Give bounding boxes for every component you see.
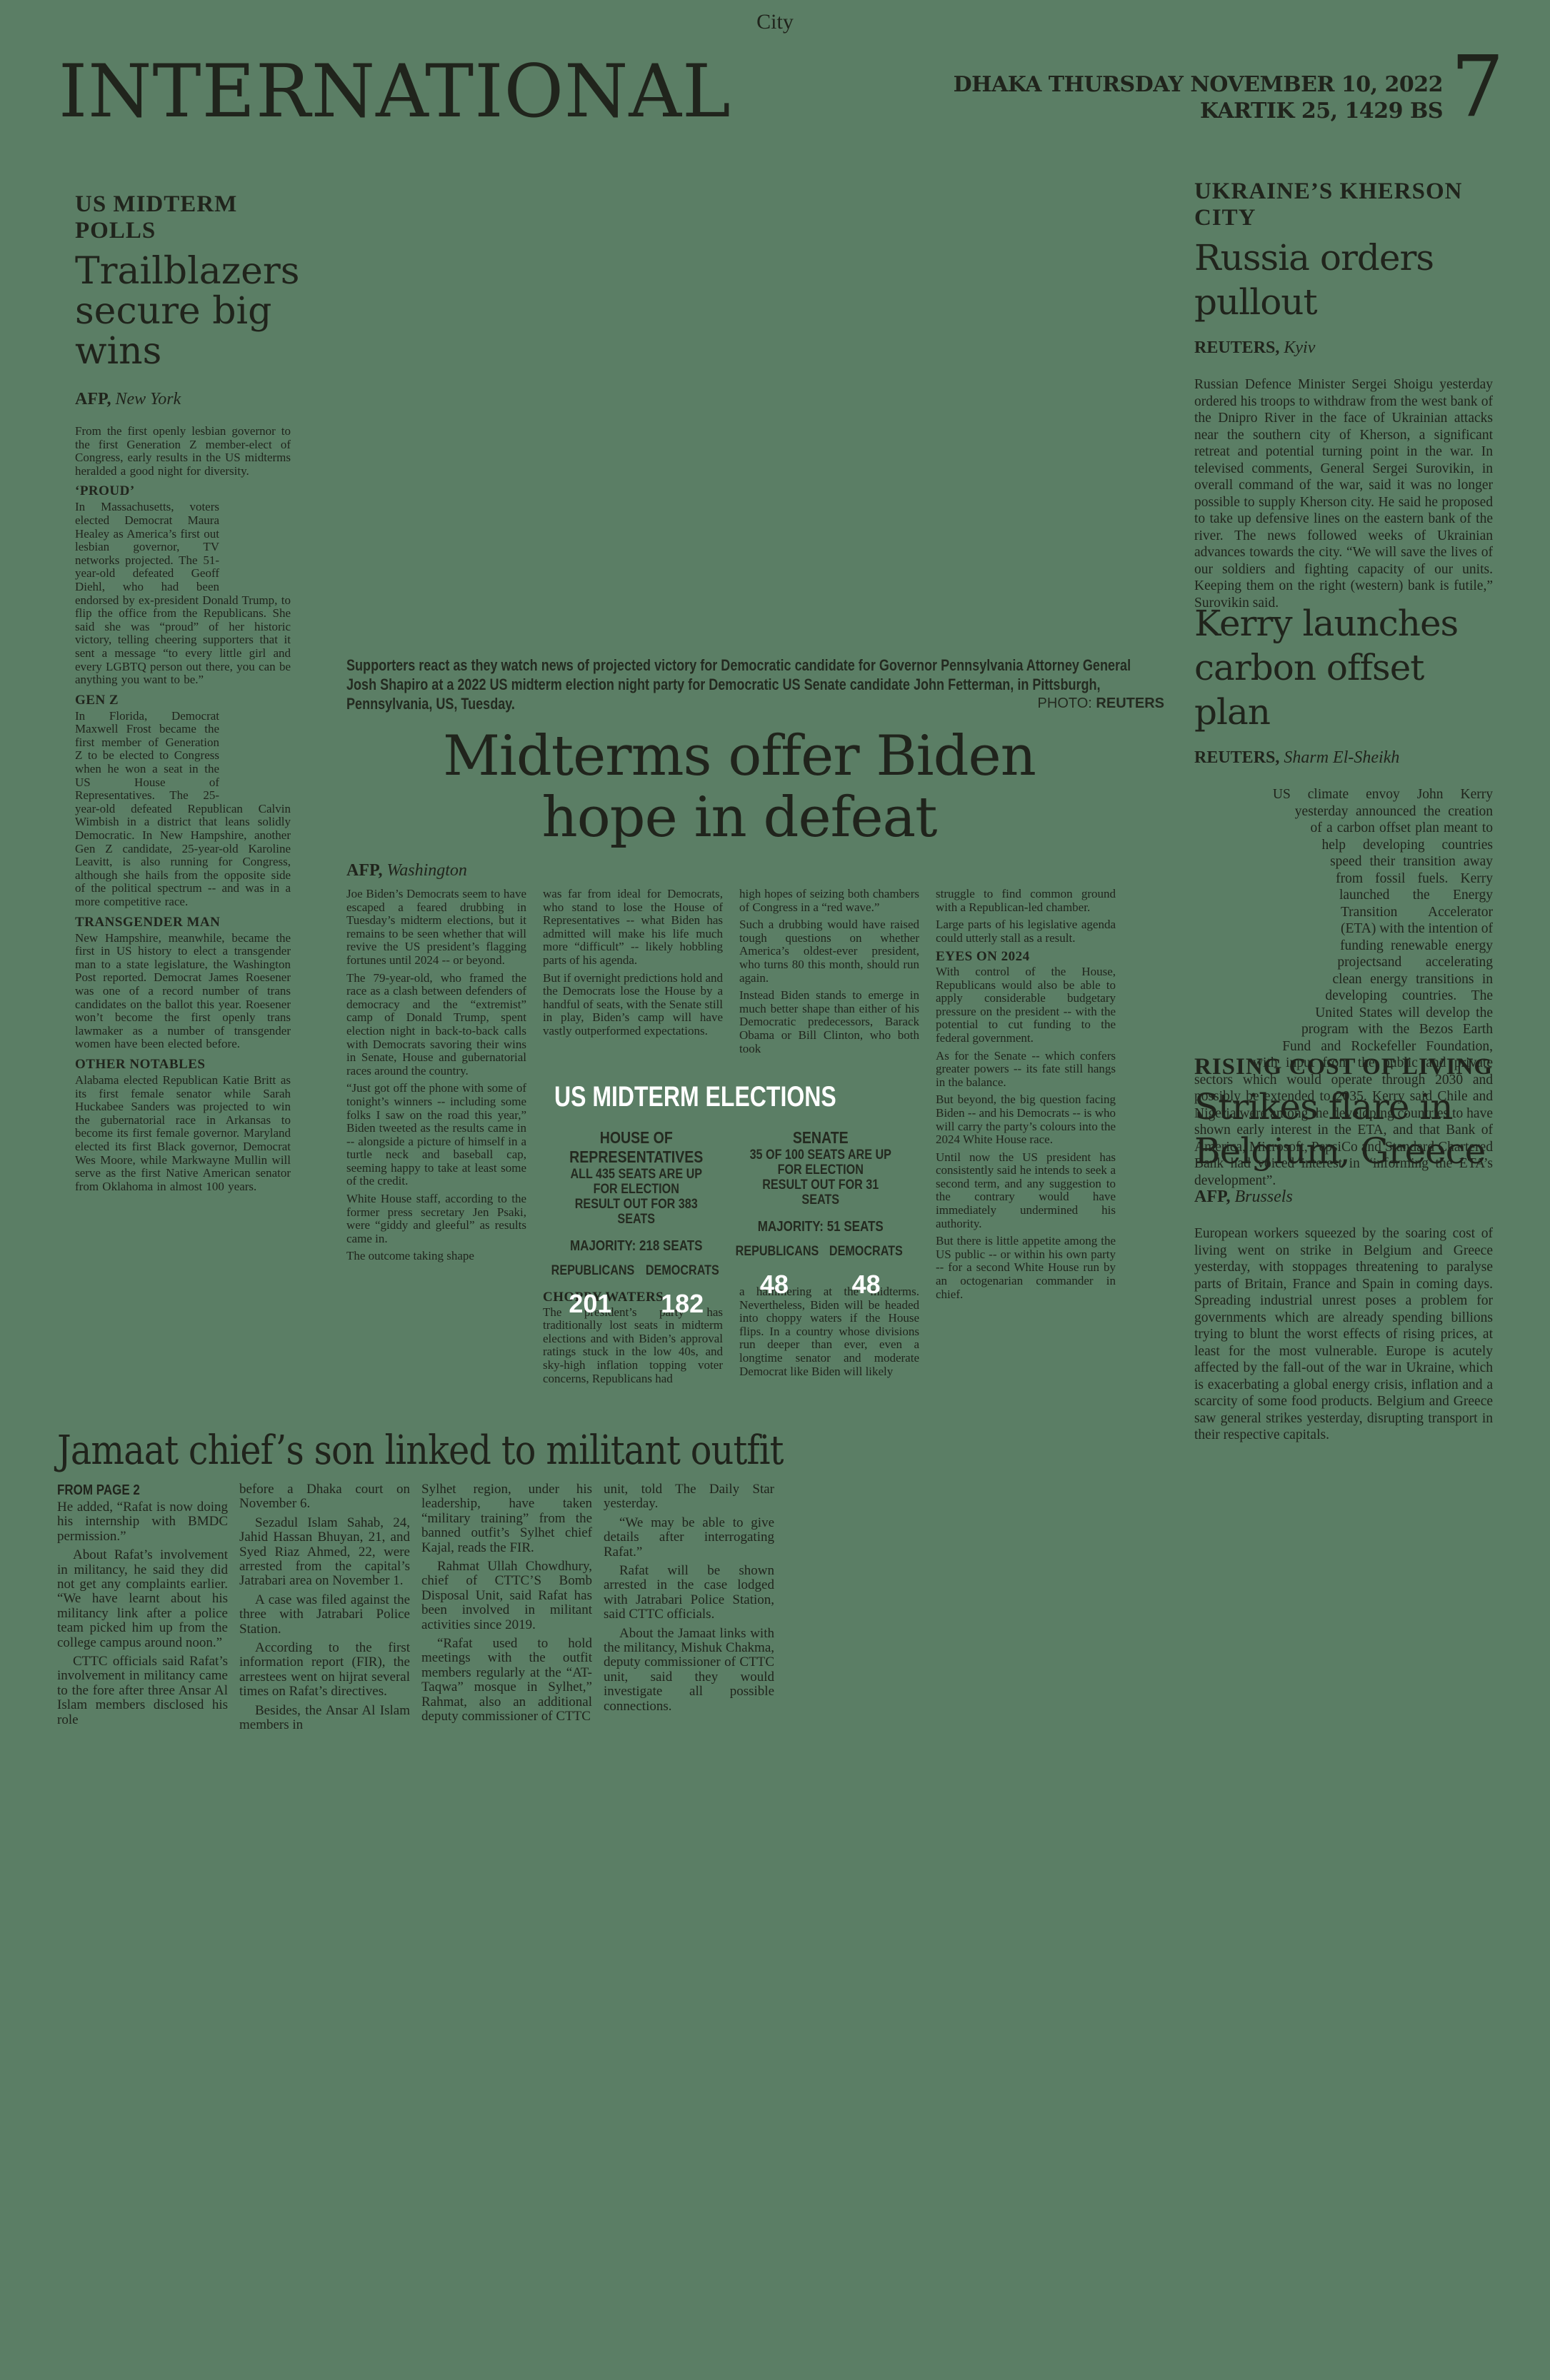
main-column-3-top: high hopes of seizing both chambers of C…: [739, 888, 919, 1070]
house-republicans-count: 201: [544, 1289, 636, 1319]
kicker-us-midterm-polls: US MIDTERM POLLS: [75, 191, 291, 244]
from-page-label: FROM PAGE 2: [57, 1482, 202, 1499]
subhead-other-notables: OTHER NOTABLES: [75, 1057, 291, 1073]
body-paragraph: Russian Defence Minister Sergei Shoigu y…: [1194, 376, 1493, 611]
page-title: INTERNATIONAL: [59, 56, 731, 129]
body-paragraph: high hopes of seizing both chambers of C…: [739, 888, 919, 914]
byline-place: New York: [115, 390, 181, 408]
infographic-senate: SENATE 35 OF 100 SEATS ARE UP FOR ELECTI…: [729, 1128, 913, 1319]
body-paragraph: Until now the US president has consisten…: [936, 1151, 1116, 1231]
photo-cutout-space: [219, 710, 291, 791]
main-column-1: Joe Biden’s Democrats seem to have escap…: [346, 888, 526, 1267]
date-line-2: KARTIK 25, 1429 BS: [954, 98, 1443, 124]
byline: REUTERS, Kyiv: [1194, 338, 1493, 358]
byline-agency: AFP,: [1194, 1188, 1230, 1206]
headline-trailblazers: Trailblazers secure big wins: [75, 251, 291, 371]
body-paragraph: “Rafat used to hold meetings with the ou…: [421, 1637, 592, 1724]
senate-majority: MAJORITY: 51 SEATS: [742, 1219, 899, 1235]
headline-strikes-belgium-greece: Strikes flare in Belgium, Greece: [1194, 1085, 1493, 1173]
body-paragraph: According to the first information repor…: [239, 1641, 410, 1699]
body-paragraph: Alabama elected Republican Katie Britt a…: [75, 1074, 291, 1193]
house-heading: HOUSE OF REPRESENTATIVES: [558, 1128, 714, 1167]
body-paragraph: In Florida, Democrat Maxwell Frost becam…: [75, 710, 291, 909]
byline-place: Sharm El-Sheikh: [1284, 748, 1399, 767]
headline-line: Midterms offer Biden: [346, 725, 1132, 787]
senate-result-line: RESULT OUT FOR 31 SEATS: [742, 1178, 899, 1207]
headline-line: Russia orders: [1194, 236, 1493, 280]
newspaper-page: City INTERNATIONAL DHAKA THURSDAY NOVEMB…: [0, 0, 1550, 2380]
senate-seats-line: 35 OF 100 SEATS ARE UP FOR ELECTION: [742, 1148, 899, 1178]
byline: REUTERS, Sharm El-Sheikh: [1194, 748, 1493, 768]
headline-line: pullout: [1194, 280, 1493, 324]
senate-republicans-label: REPUBLICANS: [735, 1244, 813, 1260]
kicker-rising-cost-of-living: RISING COST OF LIVING: [1194, 1054, 1493, 1080]
senate-democrats-label: DEMOCRATS: [827, 1244, 905, 1260]
house-seats-line: ALL 435 SEATS ARE UP FOR ELECTION: [558, 1167, 714, 1197]
headline-line: Belgium, Greece: [1194, 1129, 1493, 1173]
body-paragraph: “We may be able to give details after in…: [604, 1516, 774, 1560]
byline-agency: AFP,: [75, 390, 111, 408]
body-paragraph: A case was filed against the three with …: [239, 1593, 410, 1637]
body-paragraph: Besides, the Ansar Al Islam members in: [239, 1704, 410, 1733]
body-paragraph: Rahmat Ullah Chowdhury, chief of CTTC’S …: [421, 1560, 592, 1632]
jamaat-column-4: unit, told The Daily Star yesterday. “We…: [604, 1482, 774, 1737]
body-paragraph: The 79-year-old, who framed the race as …: [346, 972, 526, 1078]
subhead-transgender-man: TRANSGENDER MAN: [75, 915, 291, 930]
infographic-title: US MIDTERM ELECTIONS: [554, 1081, 836, 1113]
headline-line: wins: [75, 331, 291, 371]
body-paragraph: Joe Biden’s Democrats seem to have escap…: [346, 888, 526, 968]
body-paragraph: Such a drubbing would have raised tough …: [739, 918, 919, 985]
body-paragraph: About Rafat’s involvement in militancy, …: [57, 1548, 228, 1650]
photo-credit-label: PHOTO:: [1038, 696, 1092, 711]
body-paragraph: The outcome taking shape: [346, 1250, 526, 1263]
body-paragraph: CTTC officials said Rafat’s involvement …: [57, 1655, 228, 1727]
body-paragraph: was far from ideal for Democrats, who st…: [543, 888, 723, 968]
jamaat-column-1: FROM PAGE 2 He added, “Rafat is now doin…: [57, 1482, 228, 1737]
body-paragraph: Instead Biden stands to emerge in much b…: [739, 989, 919, 1055]
body-paragraph: “Just got off the phone with some of ton…: [346, 1082, 526, 1188]
senate-heading: SENATE: [742, 1128, 899, 1148]
kicker-ukraines-kherson-city: UKRAINE’S KHERSON CITY: [1194, 179, 1493, 231]
byline-agency: REUTERS,: [1194, 338, 1279, 357]
headline-line: Kerry launches: [1194, 601, 1493, 646]
body-paragraph: Sylhet region, under his leadership, hav…: [421, 1482, 592, 1555]
photo-placeholder: [346, 200, 1164, 646]
byline-agency: AFP,: [346, 861, 382, 880]
body-paragraph: In Massachusetts, voters elected Democra…: [75, 501, 291, 686]
body-paragraph: Large parts of his legislative agenda co…: [936, 918, 1116, 945]
body-paragraph: Sezadul Islam Sahab, 24, Jahid Hassan Bh…: [239, 1516, 410, 1589]
body-paragraph: struggle to find common ground with a Re…: [936, 888, 1116, 914]
headline-line: hope in defeat: [346, 787, 1132, 848]
byline-place: Kyiv: [1284, 338, 1315, 357]
subhead-proud: ‘PROUD’: [75, 483, 291, 499]
headline-jamaat: Jamaat chief’s son linked to militant ou…: [57, 1430, 689, 1472]
main-column-2-top: was far from ideal for Democrats, who st…: [543, 888, 723, 1070]
photo-credit-agency: REUTERS: [1096, 696, 1164, 711]
date-line-1: DHAKA THURSDAY NOVEMBER 10, 2022: [954, 71, 1443, 98]
headline-line: carbon offset plan: [1194, 646, 1493, 734]
headline-midterms: Midterms offer Biden hope in defeat: [346, 725, 1132, 848]
body-paragraph: But if overnight predictions hold and th…: [543, 972, 723, 1038]
infographic-house: HOUSE OF REPRESENTATIVES ALL 435 SEATS A…: [544, 1128, 729, 1319]
body-paragraph: But there is little appetite among the U…: [936, 1235, 1116, 1301]
byline: AFP, New York: [75, 390, 291, 409]
body-paragraph: But beyond, the big question facing Bide…: [936, 1093, 1116, 1146]
body-paragraph: New Hampshire, meanwhile, became the fir…: [75, 932, 291, 1051]
byline-place: Washington: [386, 861, 466, 880]
article-strikes: RISING COST OF LIVING Strikes flare in B…: [1194, 1054, 1493, 1448]
body-paragraph: As for the Senate -- which confers great…: [936, 1050, 1116, 1090]
body-paragraph: before a Dhaka court on November 6.: [239, 1482, 410, 1512]
byline-agency: REUTERS,: [1194, 748, 1279, 767]
house-republicans-label: REPUBLICANS: [551, 1263, 629, 1279]
senate-democrats-count: 48: [820, 1270, 912, 1300]
dateline: DHAKA THURSDAY NOVEMBER 10, 2022 KARTIK …: [954, 71, 1443, 124]
byline: AFP, Washington: [346, 861, 467, 880]
body-paragraph: European workers squeezed by the soaring…: [1194, 1225, 1493, 1444]
subhead-gen-z: GEN Z: [75, 693, 291, 708]
headline-line: Strikes flare in: [1194, 1085, 1493, 1129]
house-democrats-count: 182: [636, 1289, 729, 1319]
main-column-4: struggle to find common ground with a Re…: [936, 888, 1116, 1305]
headline-kerry-carbon-offset: Kerry launches carbon offset plan: [1194, 601, 1493, 734]
page-number: 7: [1451, 44, 1504, 129]
house-result-line: RESULT OUT FOR 383 SEATS: [558, 1197, 714, 1227]
house-democrats-label: DEMOCRATS: [643, 1263, 721, 1279]
photo-caption: Supporters react as they watch news of p…: [346, 656, 1164, 720]
body-paragraph: White House staff, according to the form…: [346, 1192, 526, 1245]
body-paragraph: About the Jamaat links with the militanc…: [604, 1627, 774, 1714]
senate-republicans-count: 48: [729, 1270, 821, 1300]
headline-line: Trailblazers: [75, 251, 291, 291]
byline-place: Brussels: [1234, 1188, 1292, 1206]
jamaat-column-2: before a Dhaka court on November 6. Seza…: [239, 1482, 410, 1737]
photo-cutout-space: [219, 501, 291, 582]
article-jamaat: Jamaat chief’s son linked to militant ou…: [57, 1430, 774, 1737]
body-paragraph: He added, “Rafat is now doing his intern…: [57, 1500, 228, 1544]
article-trailblazers: US MIDTERM POLLS Trailblazers secure big…: [75, 191, 291, 1197]
article-kherson: UKRAINE’S KHERSON CITY Russia orders pul…: [1194, 179, 1493, 616]
body-paragraph: unit, told The Daily Star yesterday.: [604, 1482, 774, 1512]
lead-paragraph: From the first openly lesbian governor t…: [75, 425, 291, 478]
body-paragraph: With control of the House, Republicans w…: [936, 965, 1116, 1045]
photo-credit: PHOTO: REUTERS: [1038, 696, 1164, 712]
jamaat-column-3: Sylhet region, under his leadership, hav…: [421, 1482, 592, 1737]
body-paragraph: Rafat will be shown arrested in the case…: [604, 1564, 774, 1622]
headline-line: secure big: [75, 291, 291, 331]
subhead-eyes-on-2024: EYES ON 2024: [936, 950, 1116, 964]
us-midterm-elections-infographic: US MIDTERM ELECTIONS HOUSE OF REPRESENTA…: [544, 1071, 912, 1280]
headline-russia-orders-pullout: Russia orders pullout: [1194, 236, 1493, 324]
house-majority: MAJORITY: 218 SEATS: [558, 1238, 714, 1255]
section-label: City: [0, 10, 1550, 34]
byline: AFP, Brussels: [1194, 1188, 1493, 1207]
